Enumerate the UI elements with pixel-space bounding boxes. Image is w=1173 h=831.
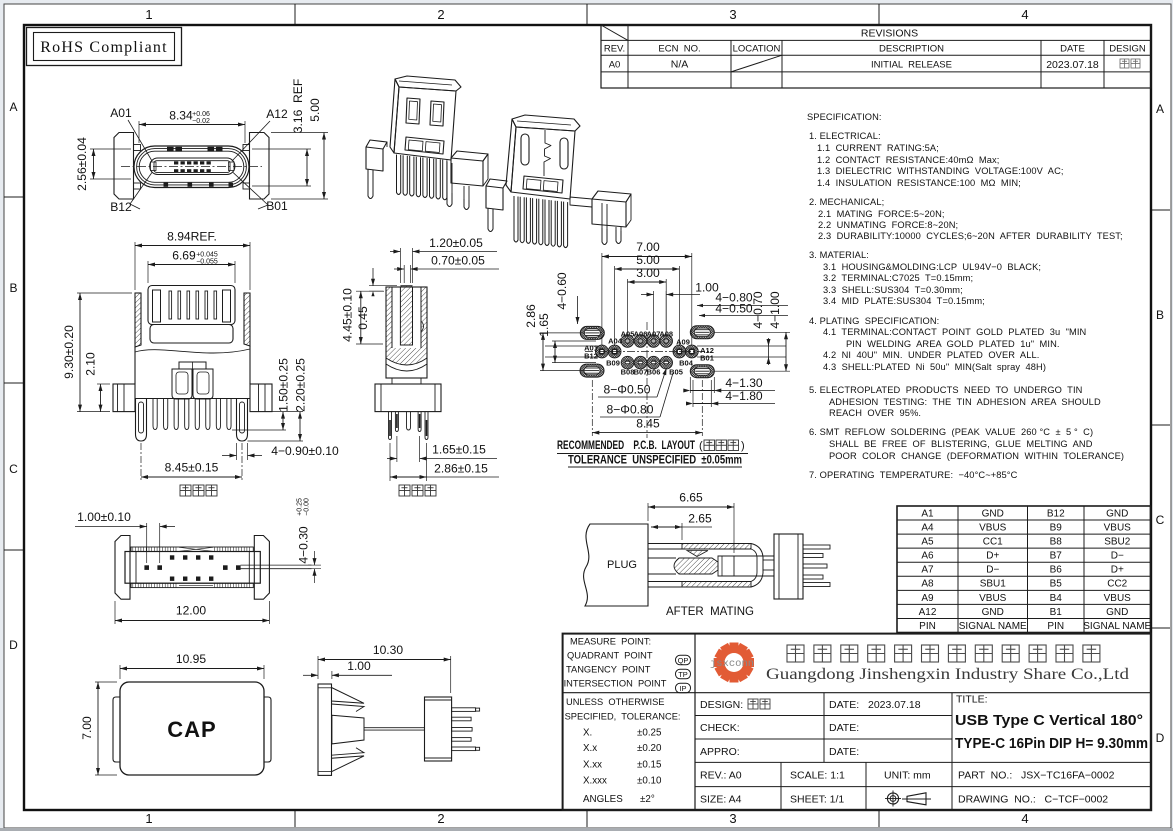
svg-text:2.10: 2.10: [84, 352, 98, 376]
svg-text:TP: TP: [678, 670, 688, 679]
svg-text:4.3 SHELL:PLATED Ni 50u" M: 4.3 SHELL:PLATED Ni 50u" MIN(Salt spray …: [823, 362, 1046, 372]
svg-text:D−: D−: [986, 565, 999, 576]
svg-text:A04: A04: [608, 337, 623, 346]
svg-text:A: A: [1156, 102, 1164, 116]
svg-text:AFTER MATING: AFTER MATING: [666, 606, 754, 618]
svg-text:SIZE: A4: SIZE: A4: [700, 794, 742, 806]
svg-text:A5: A5: [921, 537, 934, 548]
svg-text:A9: A9: [921, 593, 934, 604]
svg-text:7.00: 7.00: [80, 716, 94, 740]
svg-text:1.3 DIELECTRIC WITHSTANDING: 1.3 DIELECTRIC WITHSTANDING VOLTAGE:100V…: [817, 166, 1064, 176]
svg-text:TYPE-C 16Pin DIP H= 9.30mm: TYPE-C 16Pin DIP H= 9.30mm: [955, 736, 1148, 752]
svg-text:4−1.00: 4−1.00: [768, 291, 782, 329]
svg-text:7.00: 7.00: [636, 240, 660, 254]
svg-text:0.70±0.05: 0.70±0.05: [431, 254, 485, 268]
svg-text:VBUS: VBUS: [1104, 593, 1132, 604]
svg-text:APPRO:: APPRO:: [700, 746, 740, 758]
svg-text:2.86±0.15: 2.86±0.15: [434, 462, 488, 476]
svg-text:ADHESION TESTING: THE TIN: ADHESION TESTING: THE TIN ADHESION AREA …: [829, 397, 1101, 407]
svg-text:SPECIFICATION:: SPECIFICATION:: [807, 112, 882, 122]
svg-text:UNLESS OTHERWISE: UNLESS OTHERWISE: [566, 697, 665, 707]
svg-text:REACH OVER 95%.: REACH OVER 95%.: [829, 408, 921, 418]
svg-text:Guangdong Jinshengxin Industry: Guangdong Jinshengxin Industry Share Co.…: [766, 666, 1129, 683]
svg-text:1: 1: [145, 811, 152, 826]
svg-text:1.4 INSULATION RESISTANCE:10: 1.4 INSULATION RESISTANCE:100 MΩ MIN;: [817, 178, 1021, 188]
svg-text:3. MATERIAL:: 3. MATERIAL:: [809, 250, 869, 260]
svg-text:5. ELECTROPLATED PRODUCTS NE: 5. ELECTROPLATED PRODUCTS NEED TO UNDERG…: [809, 385, 1082, 395]
svg-text:4. PLATING SPECIFICATION:: 4. PLATING SPECIFICATION:: [809, 316, 939, 326]
svg-text:2.1 MATING FORCE:5~20N;: 2.1 MATING FORCE:5~20N;: [818, 209, 945, 219]
svg-text:2.20±0.25: 2.20±0.25: [294, 358, 308, 412]
svg-text:8.45: 8.45: [636, 417, 660, 431]
svg-text:A: A: [9, 100, 17, 114]
svg-text:MEASURE POINT:: MEASURE POINT:: [570, 637, 651, 647]
svg-text:B6: B6: [1050, 565, 1063, 576]
svg-text:VBUS: VBUS: [1104, 522, 1132, 533]
svg-text:7. OPERATING TEMPERATURE: −4: 7. OPERATING TEMPERATURE: −40°C~+85°C: [809, 470, 1018, 480]
svg-text:B12: B12: [1047, 508, 1065, 519]
svg-text:B06: B06: [647, 368, 661, 377]
svg-text:2: 2: [437, 7, 444, 22]
svg-text:10.30: 10.30: [373, 643, 404, 657]
svg-text:DATE:: DATE:: [829, 746, 859, 758]
svg-text:4.2 NI 40U" MIN. UNDER PL: 4.2 NI 40U" MIN. UNDER PLATED OVER ALL.: [823, 350, 1039, 360]
svg-text:2. MECHANICAL;: 2. MECHANICAL;: [809, 197, 884, 207]
svg-text:5.00: 5.00: [636, 253, 660, 267]
svg-text:INITIAL RELEASE: INITIAL RELEASE: [871, 60, 952, 71]
svg-text:1.50±0.25: 1.50±0.25: [277, 358, 291, 412]
svg-text:2023.07.18: 2023.07.18: [1046, 59, 1099, 71]
svg-text:X.: X.: [583, 728, 592, 739]
svg-text:DESIGN: DESIGN: [1109, 44, 1146, 55]
svg-text:4−0.70: 4−0.70: [751, 291, 765, 329]
svg-text:3.3 SHELL:SUS304 T=0.30mm;: 3.3 SHELL:SUS304 T=0.30mm;: [823, 285, 963, 295]
svg-text:A0: A0: [609, 60, 621, 71]
svg-text:3.4 MID PLATE:SUS304 T=0.15: 3.4 MID PLATE:SUS304 T=0.15mm;: [823, 296, 985, 306]
svg-text:3.2 TERMINAL:C7025 T=0.15mm;: 3.2 TERMINAL:C7025 T=0.15mm;: [823, 273, 973, 283]
svg-text:SIGNAL NAME: SIGNAL NAME: [1083, 621, 1151, 632]
svg-text:DATE: DATE: [1060, 44, 1085, 55]
svg-text:A8: A8: [921, 579, 934, 590]
svg-text:PIN WELDING AREA GOLD PLAT: PIN WELDING AREA GOLD PLATED 1u" MIN.: [846, 339, 1060, 349]
svg-text:INTERSECTION POINT: INTERSECTION POINT: [564, 679, 667, 689]
svg-text:+0.06: +0.06: [192, 111, 210, 118]
svg-text:VBUS: VBUS: [979, 522, 1007, 533]
svg-text:1.2 CONTACT RESISTANCE:40mΩ: 1.2 CONTACT RESISTANCE:40mΩ Max;: [817, 155, 999, 165]
svg-text:A7: A7: [921, 565, 934, 576]
svg-text:USB Type C Vertical 180°: USB Type C Vertical 180°: [955, 713, 1143, 729]
svg-text:8−Φ0.80: 8−Φ0.80: [607, 403, 654, 417]
svg-text:+0.045: +0.045: [196, 252, 218, 259]
svg-text:REV.: A0: REV.: A0: [700, 770, 742, 782]
svg-text:4−0.30: 4−0.30: [297, 526, 311, 564]
svg-text:D−: D−: [1111, 551, 1124, 562]
svg-text:SHALL BE FREE OF BLISTERIN: SHALL BE FREE OF BLISTERING, GLUE MELTIN…: [829, 439, 1093, 449]
svg-text:B4: B4: [1050, 593, 1063, 604]
svg-text:0.45: 0.45: [356, 306, 370, 330]
svg-text:2.3 DURABILITY:10000 CYCLES;: 2.3 DURABILITY:10000 CYCLES;6~20N AFTER …: [818, 231, 1123, 241]
svg-text:1.65: 1.65: [537, 313, 551, 337]
svg-text:2.65: 2.65: [688, 512, 712, 526]
svg-text:1. ELECTRICAL:: 1. ELECTRICAL:: [809, 131, 881, 141]
svg-text:SCALE: 1:1: SCALE: 1:1: [790, 770, 845, 782]
svg-text:8.34: 8.34: [169, 109, 193, 123]
svg-text:5.00: 5.00: [308, 98, 322, 122]
svg-text:4−1.80: 4−1.80: [725, 389, 763, 403]
svg-text:D: D: [1156, 731, 1165, 745]
svg-text:N/A: N/A: [671, 59, 689, 71]
svg-text:B1: B1: [1050, 607, 1063, 618]
svg-text:CC2: CC2: [1107, 579, 1127, 590]
svg-text:CAP: CAP: [167, 717, 216, 742]
svg-text:B05: B05: [669, 368, 683, 377]
svg-text:4: 4: [1021, 7, 1028, 22]
svg-text:A01: A01: [110, 106, 132, 120]
svg-text:RoHS Compliant: RoHS Compliant: [40, 39, 167, 56]
svg-text:B9: B9: [1050, 522, 1063, 533]
svg-text:PIN: PIN: [919, 621, 936, 632]
svg-text:LOCATION: LOCATION: [733, 44, 781, 55]
svg-text:1.65±0.15: 1.65±0.15: [432, 443, 486, 457]
svg-text:X.x: X.x: [583, 743, 597, 754]
svg-text:POOR COLOR CHANGE (DEFORMAT: POOR COLOR CHANGE (DEFORMATION WITHIN TO…: [829, 451, 1124, 461]
svg-text:12.00: 12.00: [176, 604, 207, 618]
svg-text:GND: GND: [982, 607, 1004, 618]
svg-text:B12: B12: [584, 352, 598, 361]
svg-text:X.xxx: X.xxx: [583, 776, 607, 787]
svg-text:REV.: REV.: [604, 44, 625, 55]
svg-text:8−Φ0.50: 8−Φ0.50: [604, 383, 651, 397]
svg-text:±0.10: ±0.10: [637, 776, 662, 787]
svg-text:2023.07.18: 2023.07.18: [868, 699, 921, 711]
svg-text:A4: A4: [921, 522, 934, 533]
svg-text:B09: B09: [606, 359, 620, 368]
svg-text:6.69: 6.69: [172, 249, 196, 263]
svg-text:8.45±0.15: 8.45±0.15: [165, 461, 219, 475]
svg-text:jsxconn: jsxconn: [710, 658, 754, 670]
svg-text:B5: B5: [1050, 579, 1063, 590]
svg-text:B04: B04: [679, 359, 694, 368]
svg-text:1.00: 1.00: [347, 659, 371, 673]
svg-text:−0.055: −0.055: [196, 259, 218, 266]
svg-text:±0.15: ±0.15: [637, 760, 662, 771]
svg-text:B: B: [1156, 308, 1164, 322]
svg-text:3.16 REF: 3.16 REF: [291, 79, 305, 133]
svg-text:A06: A06: [634, 330, 648, 339]
svg-text:A12: A12: [919, 607, 937, 618]
svg-text:1: 1: [145, 7, 152, 22]
svg-text:D+: D+: [1111, 565, 1124, 576]
svg-text:6.65: 6.65: [679, 491, 703, 505]
svg-text:TITLE:: TITLE:: [956, 694, 988, 706]
svg-text:A6: A6: [921, 551, 934, 562]
svg-text:C: C: [9, 462, 18, 476]
svg-text:8.94REF.: 8.94REF.: [167, 230, 217, 244]
svg-text:SHEET: 1/1: SHEET: 1/1: [790, 794, 844, 806]
svg-text:PART NO.: JSX−TC16FA−0002: PART NO.: JSX−TC16FA−0002: [958, 770, 1115, 782]
svg-text:PLUG: PLUG: [607, 559, 637, 571]
svg-text:4−0.90±0.10: 4−0.90±0.10: [271, 444, 339, 458]
svg-text:A1: A1: [921, 508, 934, 519]
svg-text:B01: B01: [266, 199, 288, 213]
svg-text:(: (: [699, 440, 703, 452]
svg-text:3: 3: [729, 7, 736, 22]
svg-text:4.45±0.10: 4.45±0.10: [341, 288, 355, 342]
svg-text:2: 2: [437, 811, 444, 826]
svg-text:QP: QP: [678, 656, 689, 665]
svg-text:DESCRIPTION: DESCRIPTION: [879, 44, 944, 55]
svg-text:A12: A12: [266, 107, 288, 121]
svg-text:DATE:: DATE:: [829, 699, 859, 711]
svg-text:9.30±0.20: 9.30±0.20: [62, 325, 76, 379]
svg-text:IP: IP: [679, 684, 686, 693]
svg-text:B: B: [9, 281, 17, 295]
svg-text:3.1 HOUSING&MOLDING:LCP UL94: 3.1 HOUSING&MOLDING:LCP UL94V−0 BLACK;: [823, 262, 1041, 272]
svg-text:−0.00: −0.00: [304, 498, 311, 516]
svg-text:TOLERANCE UNSPECIFIED ±0.05m: TOLERANCE UNSPECIFIED ±0.05mm: [568, 455, 742, 467]
svg-text:4−0.50: 4−0.50: [715, 302, 753, 316]
svg-text:−0.02: −0.02: [192, 118, 210, 125]
svg-text:UNIT: mm: UNIT: mm: [884, 770, 931, 782]
svg-text:±0.20: ±0.20: [637, 743, 662, 754]
svg-text:GND: GND: [1106, 607, 1128, 618]
svg-text:2.56±0.04: 2.56±0.04: [75, 137, 89, 191]
svg-text:D+: D+: [986, 551, 999, 562]
svg-text:SIGNAL NAME: SIGNAL NAME: [959, 621, 1027, 632]
svg-text:4: 4: [1021, 811, 1028, 826]
svg-text:SBU1: SBU1: [980, 579, 1007, 590]
svg-text:B8: B8: [1050, 537, 1063, 548]
svg-text:4.1 TERMINAL:CONTACT POINT: 4.1 TERMINAL:CONTACT POINT GOLD PLATED 3…: [823, 327, 1086, 337]
svg-text:4−1.30: 4−1.30: [725, 376, 763, 390]
svg-text:1.00±0.10: 1.00±0.10: [77, 510, 131, 524]
svg-text:±2°: ±2°: [640, 794, 655, 805]
svg-text:±0.25: ±0.25: [637, 728, 662, 739]
svg-text:3: 3: [729, 811, 736, 826]
svg-text:DRAWING NO.: C−TCF−0002: DRAWING NO.: C−TCF−0002: [958, 794, 1108, 806]
svg-text:DATE:: DATE:: [829, 722, 859, 734]
svg-text:VBUS: VBUS: [979, 593, 1007, 604]
svg-text:): ): [741, 440, 745, 452]
svg-text:+0.25: +0.25: [297, 498, 304, 516]
svg-text:QUADRANT POINT: QUADRANT POINT: [567, 651, 653, 661]
svg-text:10.95: 10.95: [176, 652, 207, 666]
svg-text:ANGLES: ANGLES: [583, 794, 623, 805]
svg-text:2.86: 2.86: [524, 304, 538, 328]
svg-text:3.00: 3.00: [636, 266, 660, 280]
svg-text:RECOMMENDED P.C.B. LAYOUT: RECOMMENDED P.C.B. LAYOUT: [557, 440, 695, 452]
svg-text:A09: A09: [676, 338, 690, 347]
svg-text:SBU2: SBU2: [1104, 537, 1131, 548]
svg-text:B7: B7: [1050, 551, 1063, 562]
svg-text:4−0.60: 4−0.60: [555, 272, 569, 310]
svg-text:1.20±0.05: 1.20±0.05: [429, 236, 483, 250]
svg-text:1.1 CURRENT RATING:5A;: 1.1 CURRENT RATING:5A;: [817, 143, 939, 153]
svg-text:B08: B08: [621, 368, 635, 377]
svg-text:B01: B01: [700, 354, 714, 363]
svg-text:C: C: [1156, 513, 1165, 527]
svg-text:X.xx: X.xx: [583, 760, 602, 771]
svg-text:ECN NO.: ECN NO.: [658, 44, 700, 55]
svg-text:2.2 UNMATING FORCE:8~20N;: 2.2 UNMATING FORCE:8~20N;: [818, 220, 958, 230]
svg-text:GND: GND: [982, 508, 1004, 519]
svg-text:GND: GND: [1106, 508, 1128, 519]
svg-text:SPECIFIED, TOLERANCE:: SPECIFIED, TOLERANCE:: [565, 712, 681, 722]
svg-text:CC1: CC1: [983, 537, 1003, 548]
svg-text:CHECK:: CHECK:: [700, 722, 740, 734]
svg-text:PIN: PIN: [1047, 621, 1064, 632]
svg-text:DESIGN:: DESIGN:: [700, 699, 743, 711]
svg-text:B12: B12: [110, 200, 132, 214]
svg-text:REVISIONS: REVISIONS: [861, 28, 918, 40]
svg-text:D: D: [9, 638, 18, 652]
svg-text:B07: B07: [634, 368, 648, 377]
svg-text:6. SMT REFLOW SOLDERING (PE: 6. SMT REFLOW SOLDERING (PEAK VALUE 260 …: [809, 427, 1093, 437]
svg-text:TANGENCY POINT: TANGENCY POINT: [566, 665, 651, 675]
